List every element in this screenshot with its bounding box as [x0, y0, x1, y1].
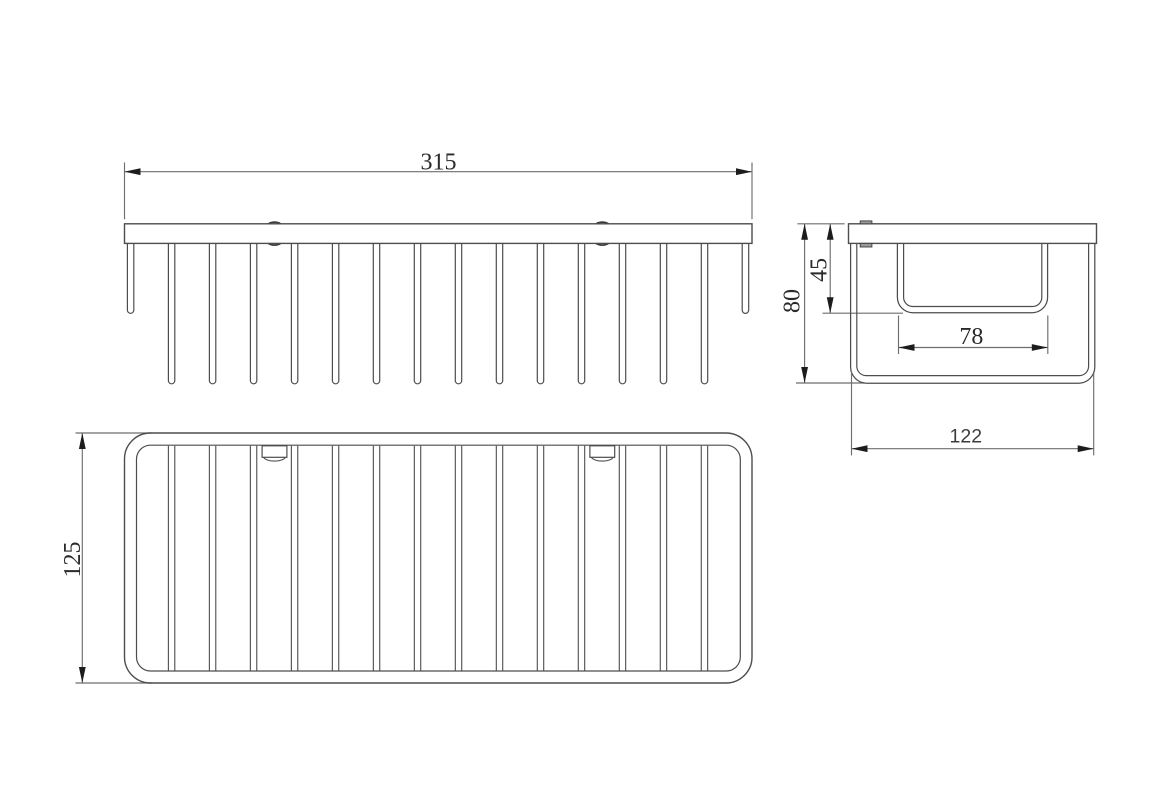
svg-text:125: 125 — [60, 542, 86, 578]
svg-text:80: 80 — [780, 289, 806, 313]
svg-text:315: 315 — [421, 149, 457, 175]
svg-text:122: 122 — [950, 425, 983, 447]
svg-text:45: 45 — [806, 258, 832, 282]
svg-text:78: 78 — [959, 324, 983, 350]
